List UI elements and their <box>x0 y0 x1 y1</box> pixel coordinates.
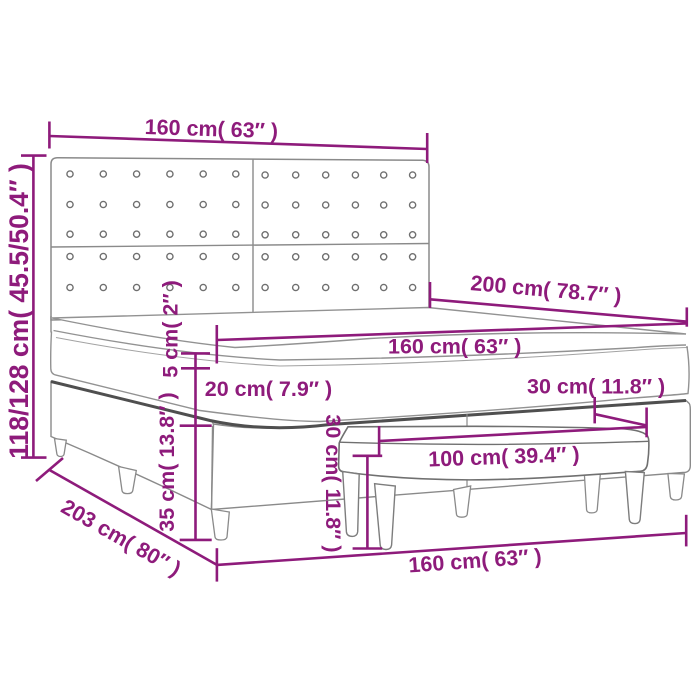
svg-text:35 cm( 13.8″ ): 35 cm( 13.8″ ) <box>155 392 179 531</box>
svg-text:30 cm( 11.8″ ): 30 cm( 11.8″ ) <box>321 414 345 552</box>
svg-text:160 cm( 63″ ): 160 cm( 63″ ) <box>388 335 521 359</box>
svg-text:5 cm( 2″ ): 5 cm( 2″ ) <box>159 280 183 378</box>
svg-text:20 cm( 7.9″ ): 20 cm( 7.9″ ) <box>205 377 332 401</box>
svg-text:118/128 cm( 45.5/50.4″ ): 118/128 cm( 45.5/50.4″ ) <box>4 163 34 459</box>
svg-text:160 cm( 63″ ): 160 cm( 63″ ) <box>144 115 278 143</box>
svg-text:30 cm( 11.8″ ): 30 cm( 11.8″ ) <box>527 375 665 399</box>
